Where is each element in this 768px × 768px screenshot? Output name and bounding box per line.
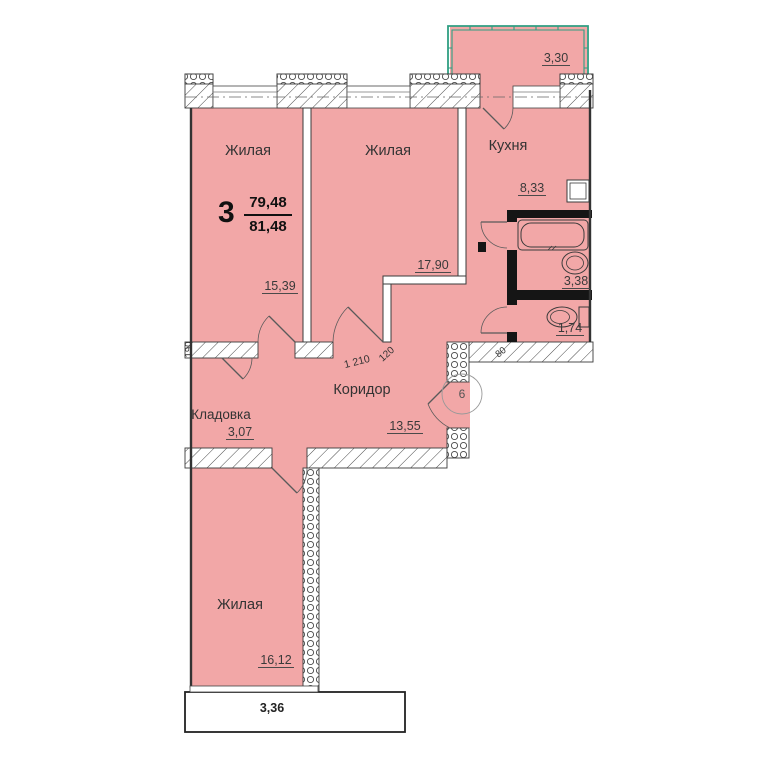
window-living3 [190,686,318,692]
floor-plan-drawing [0,0,768,768]
wall-lower-room-east [303,468,319,692]
entry-pier-bottom [447,428,469,458]
wall-living2-step-v [383,284,391,342]
wall-living2-step-h [383,276,466,284]
wall-kitchen-west [458,108,466,282]
entry-pier-top [447,342,469,382]
floor-plan-page: Жилая 15,39 3 79,48 81,48 Жилая 17,90 Ку… [0,0,768,768]
balcony-bottom [185,692,405,732]
entry-opening-fill [447,382,470,428]
exterior-wall-right-bottom [469,342,593,362]
lower-room-fill [190,450,318,692]
wall-living1-living2 [303,108,311,342]
